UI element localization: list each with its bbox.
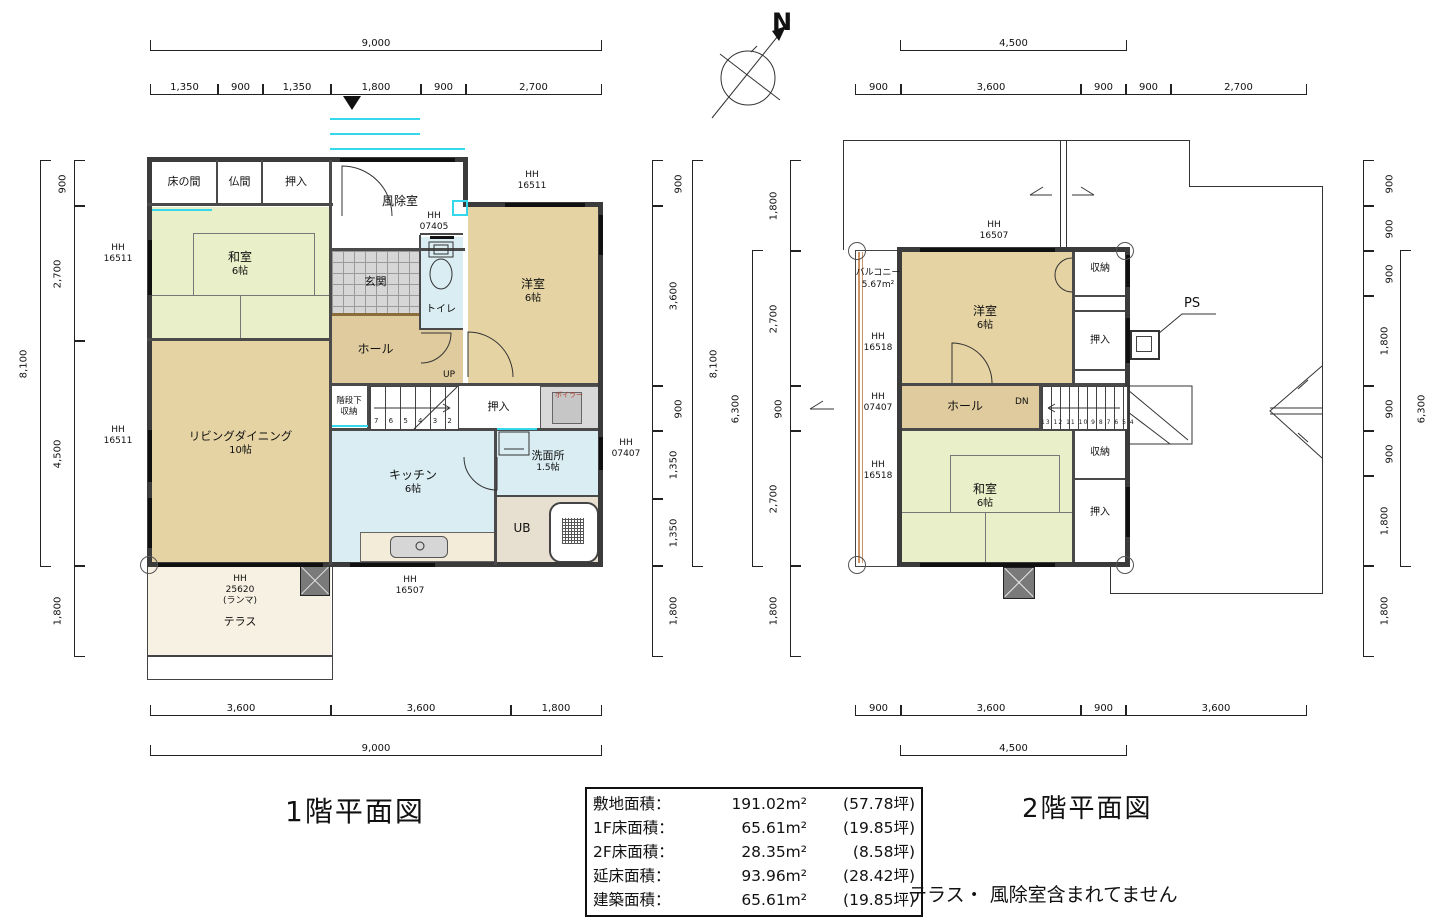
dim-segment: 900: [1363, 160, 1374, 207]
dim-segment: 3,600: [150, 705, 332, 716]
dim-total-top-1f: 9,000: [150, 40, 602, 51]
room-label: 収納: [340, 407, 357, 418]
area-value: 191.02m²: [695, 792, 807, 816]
hh-number: 07407: [612, 449, 641, 459]
area-tsubo: (8.58坪): [807, 840, 915, 864]
dim-segment: 900: [1363, 430, 1374, 477]
hh-label: HH 16511: [98, 425, 138, 447]
dim-label: 3,600: [901, 703, 1081, 714]
window: [350, 563, 435, 567]
floorplan-canvas: 7 6 5 4 3 2 床の間 仏間 押入 風除室 玄関 トイレ 和室 6帖 ホ…: [0, 0, 1442, 923]
room-label: 収納: [1090, 446, 1110, 459]
partition: [216, 160, 218, 205]
agarikamachi: [332, 313, 419, 316]
entrance-step-line: [330, 133, 420, 135]
roof-line: [843, 140, 1189, 141]
roof-chevron: [810, 401, 834, 409]
dim-label: 1,800: [511, 703, 601, 714]
ps-box-inner: [1136, 336, 1152, 352]
area-value: 28.35m²: [695, 840, 807, 864]
area-label: 1F床面積：: [593, 816, 695, 840]
roof-line: [1189, 140, 1190, 187]
room-fujoshitsu: 風除室: [355, 192, 445, 212]
dim-total-bottom-1f: 9,000: [150, 745, 602, 756]
roof-line: [1322, 186, 1323, 593]
room-label: 仏間: [229, 175, 251, 189]
chimney-1f: [300, 566, 330, 596]
dim-label: 900: [856, 82, 901, 93]
window: [1126, 487, 1130, 537]
dim-segment: 3,600: [652, 205, 663, 387]
dim-label: 4,500: [901, 743, 1126, 754]
ps-label: PS: [1184, 296, 1200, 311]
tatami-line: [985, 512, 986, 562]
stair-landing-2f: [1128, 386, 1192, 444]
dim-segment: 3,600: [330, 705, 512, 716]
dim-segment: 900: [652, 160, 663, 207]
window: [599, 437, 603, 470]
floor1-title: 1階平面図: [285, 790, 425, 830]
dim-label: 1,800: [670, 597, 680, 626]
partition: [329, 160, 332, 565]
dim-label: 900: [1385, 174, 1395, 193]
hh-number: 16511: [104, 436, 133, 446]
tatami-line: [193, 233, 315, 234]
room-oshiire-top-1f: 押入: [263, 160, 329, 205]
partition: [261, 160, 263, 205]
hh-number: 16518: [864, 471, 893, 481]
hh-prefix: HH: [233, 574, 247, 584]
room-label: 収納: [1090, 262, 1110, 275]
hh-number: 25620: [226, 585, 255, 595]
hh-label: HH 16511: [512, 170, 552, 192]
dim-segment: 2,700: [74, 205, 85, 342]
dim-segment: 900: [652, 385, 663, 432]
dim-label: 900: [1081, 703, 1126, 714]
window: [148, 498, 152, 548]
hh-prefix: HH: [111, 243, 125, 253]
room-label: 階段下: [336, 396, 362, 407]
dim-segment: 1,350: [652, 430, 663, 500]
partition: [147, 203, 333, 206]
partition: [1075, 478, 1125, 480]
dim-label: 1,350: [263, 82, 331, 93]
dim-segment: 1,800: [510, 705, 602, 716]
dim-segment: 900: [420, 84, 467, 95]
hh-prefix: HH: [871, 392, 885, 402]
dim-label: 2,700: [466, 82, 601, 93]
dim-total-right-2f: 6,300: [1400, 250, 1411, 567]
roof-flue-line: [1066, 140, 1067, 252]
partition: [147, 338, 329, 341]
area-tsubo: (57.78坪): [807, 792, 915, 816]
hh-number: 07405: [420, 222, 449, 232]
compass-circle: [721, 51, 775, 105]
room-oshiire-bottom-2f: 押入: [1076, 502, 1124, 522]
dim-label: 9,000: [151, 38, 601, 49]
entrance-door-band: [340, 158, 455, 162]
hh-prefix: HH: [111, 425, 125, 435]
window: [920, 248, 1055, 252]
dim-segment: 1,800: [1363, 295, 1374, 387]
dim-label: 900: [58, 174, 68, 193]
up-label: UP: [443, 370, 455, 380]
window: [148, 430, 152, 482]
dim-segment: 2,700: [465, 84, 602, 95]
dim-segment: 900: [1363, 385, 1374, 432]
partition: [419, 328, 463, 330]
room-kaidan-shuno: 階段下 収納: [328, 388, 370, 426]
dim-label: 900: [674, 174, 684, 193]
roof-chevron: [1072, 187, 1094, 195]
hh-sub: (ランマ): [223, 596, 257, 606]
room-butsuma: 仏間: [218, 160, 261, 205]
room-fill-yoshitsu-2f: [902, 252, 1073, 383]
hh-label: HH 16507: [972, 220, 1016, 242]
roof-line: [1189, 186, 1322, 187]
dim-label: 8,100: [710, 349, 720, 378]
dim-segment: 1,800: [652, 565, 663, 657]
dim-segment: 3,600: [900, 84, 1082, 95]
tatami-line: [1059, 455, 1060, 512]
column-circle: [140, 556, 158, 574]
room-fill-hall-2f: [902, 386, 1040, 428]
dim-label: 3,600: [331, 703, 511, 714]
hh-number: 16511: [104, 254, 133, 264]
dim-segment: 1,800: [74, 565, 85, 657]
door-arc: [342, 166, 392, 216]
roof-line: [1110, 593, 1323, 594]
hh-prefix: HH: [871, 332, 885, 342]
dim-label: 6,300: [732, 394, 742, 423]
dim-label: 8,100: [20, 349, 30, 378]
room-label: 床の間: [168, 175, 201, 189]
room-fill-hall-1f-b: [419, 330, 463, 383]
room-oshiire-mid-1f: 押入: [459, 386, 538, 428]
floor2-title: 2階平面図: [1022, 788, 1153, 825]
window-accent: [332, 425, 368, 427]
roof-chevron: [1030, 187, 1052, 195]
window: [148, 240, 152, 295]
dim-label: 900: [1385, 399, 1395, 418]
hh-number: 16507: [980, 231, 1009, 241]
hh-prefix: HH: [871, 460, 885, 470]
area-value: 65.61m²: [695, 888, 807, 912]
bathtub-hatch: [562, 518, 584, 544]
dim-segment: 900: [217, 84, 264, 95]
column-circle: [1116, 556, 1134, 574]
hh-label: HH 07407: [604, 438, 648, 460]
column-circle: [1116, 242, 1134, 260]
area-label: 2F床面積：: [593, 840, 695, 864]
dim-label: 1,800: [54, 597, 64, 626]
dim-segment: 1,350: [652, 498, 663, 567]
dim-label: 900: [1081, 82, 1126, 93]
boiler-inner: [552, 392, 582, 424]
hh-prefix: HH: [403, 575, 417, 585]
area-tsubo: (28.42坪): [807, 864, 915, 888]
dim-segment: 900: [74, 160, 85, 207]
area-label: 延床面積：: [593, 864, 695, 888]
dim-segment: 1,800: [330, 84, 422, 95]
dim-segment: 2,700: [790, 250, 801, 387]
room-fill-yoshitsu-1f: [468, 207, 598, 383]
roof-flue-line: [1060, 140, 1061, 252]
hh-label: HH 07407: [856, 392, 900, 414]
room-fill-living: [152, 341, 329, 562]
area-row: 敷地面積： 191.02m² (57.78坪): [593, 792, 915, 816]
hh-label: HH 16507: [388, 575, 432, 597]
dim-segment: 1,350: [262, 84, 332, 95]
dim-segment: 900: [855, 705, 902, 716]
area-table: 敷地面積： 191.02m² (57.78坪) 1F床面積： 65.61m² (…: [585, 787, 923, 917]
dim-total-bottom-2f: 4,500: [900, 745, 1127, 756]
dim-total-left-1f: 8,100: [40, 160, 51, 567]
entrance-step-line: [330, 148, 465, 150]
hh-label: HH 16518: [856, 460, 900, 482]
dim-segment: 1,800: [1363, 475, 1374, 567]
hh-prefix: HH: [987, 220, 1001, 230]
dim-total-top-2f: 4,500: [900, 40, 1127, 51]
dim-label: 900: [1126, 82, 1171, 93]
room-label: 押入: [488, 400, 510, 414]
dim-label: 1,350: [670, 518, 680, 547]
hh-prefix: HH: [525, 170, 539, 180]
terrace-step: [147, 655, 333, 680]
hh-number: 16518: [864, 343, 893, 353]
dim-label: 1,800: [331, 82, 421, 93]
dim-label: 6,300: [1418, 394, 1428, 423]
hh-prefix: HH: [427, 211, 441, 221]
dim-segment: 900: [855, 84, 902, 95]
dn-label: DN: [1015, 397, 1029, 407]
roof-line: [843, 140, 844, 250]
room-shuno-top-2f: 収納: [1076, 258, 1124, 278]
tatami-line: [902, 512, 1073, 513]
dim-segment: 900: [1125, 84, 1172, 95]
tatami-line: [950, 455, 951, 512]
dim-segment: 900: [1080, 705, 1127, 716]
dim-label: 4,500: [901, 38, 1126, 49]
window: [158, 563, 323, 567]
partition: [494, 495, 598, 497]
dim-total-left-2f: 6,300: [752, 250, 763, 567]
partition: [419, 235, 421, 330]
gable-arrow: [1270, 366, 1322, 458]
partition: [1075, 369, 1125, 371]
dim-segment: 1,800: [1363, 565, 1374, 657]
dim-label: 900: [218, 82, 263, 93]
room-fill-genkan: [332, 251, 419, 313]
dim-label: 1,350: [151, 82, 218, 93]
tatami-line: [314, 233, 315, 295]
dim-label: 3,600: [901, 82, 1081, 93]
dim-segment: 2,700: [790, 430, 801, 567]
window-accent: [497, 428, 537, 430]
area-row: 1F床面積： 65.61m² (19.85坪): [593, 816, 915, 840]
dim-segment: 900: [1363, 205, 1374, 252]
window: [430, 236, 454, 239]
tatami-line: [240, 295, 241, 338]
dim-segment: 900: [1080, 84, 1127, 95]
window-accent: [152, 209, 212, 211]
tatami-line: [950, 455, 1060, 456]
room-oshiire-top-2f: 押入: [1076, 330, 1124, 350]
room-label: 押入: [1090, 506, 1110, 519]
partition: [1075, 295, 1125, 297]
room-label: 風除室: [382, 194, 418, 210]
dim-label: 2,700: [1171, 82, 1306, 93]
dim-label: 3,600: [1126, 703, 1306, 714]
tatami-line: [193, 233, 194, 295]
dim-segment: 2,700: [1170, 84, 1307, 95]
dim-label: 2,700: [770, 304, 780, 333]
area-label: 敷地面積：: [593, 792, 695, 816]
room-fill-hall-1f: [332, 316, 419, 383]
dim-segment: 1,800: [790, 565, 801, 657]
area-tsubo: (19.85坪): [807, 888, 915, 912]
partition: [1075, 310, 1125, 312]
dim-label: 1,800: [770, 597, 780, 626]
ps-leader: [1158, 314, 1216, 334]
dim-label: 3,600: [670, 282, 680, 311]
hh-label-ranma: HH 25620 (ランマ): [212, 574, 268, 606]
stair-numbers-1f: 7 6 5 4 3 2: [374, 417, 456, 425]
entrance-marker: [343, 96, 361, 110]
area-value: 93.96m²: [695, 864, 807, 888]
partition: [332, 248, 465, 251]
dim-label: 900: [1385, 219, 1395, 238]
dim-segment: 900: [790, 385, 801, 432]
dim-label: 1,800: [770, 192, 780, 221]
column-circle: [848, 556, 866, 574]
dim-label: 900: [421, 82, 466, 93]
window: [505, 203, 585, 207]
hh-number: 16511: [518, 181, 547, 191]
room-shuno-bottom-2f: 収納: [1076, 442, 1124, 462]
hh-label: HH 16511: [98, 243, 138, 265]
dim-segment: 1,800: [790, 160, 801, 252]
chimney-2f: [1003, 567, 1035, 599]
wall: [598, 202, 603, 567]
dim-total-right-1f: 8,100: [692, 160, 703, 567]
room-label: 押入: [285, 175, 307, 189]
dim-label: 900: [856, 703, 901, 714]
dim-label: 900: [1385, 444, 1395, 463]
partition: [420, 233, 463, 235]
dim-segment: 3,600: [900, 705, 1082, 716]
room-fill-washitsu-2f: [902, 431, 1073, 562]
area-value: 65.61m²: [695, 816, 807, 840]
dim-label: 3,600: [151, 703, 331, 714]
column-circle: [848, 242, 866, 260]
dim-label: 1,800: [1381, 597, 1391, 626]
room-fill-senmenjo: [497, 430, 598, 495]
dim-label: 1,350: [670, 451, 680, 480]
dim-segment: 4,500: [74, 340, 85, 567]
area-row: 2F床面積： 28.35m² (8.58坪): [593, 840, 915, 864]
hh-number: 16507: [396, 586, 425, 596]
room-tokonoma: 床の間: [152, 160, 216, 205]
dim-label: 4,500: [54, 439, 64, 468]
dim-label: 900: [1385, 264, 1395, 283]
stair-numbers-2f: 13 12 11 10 9 8 7 6 5 4: [1041, 419, 1135, 426]
area-row: 建築面積： 65.61m² (19.85坪): [593, 888, 915, 912]
dim-label: 900: [674, 399, 684, 418]
area-row: 延床面積： 93.96m² (28.42坪): [593, 864, 915, 888]
hh-number: 07407: [864, 403, 893, 413]
area-label: 建築面積：: [593, 888, 695, 912]
kitchen-sink: [390, 536, 448, 558]
dim-label: 900: [774, 399, 784, 418]
dim-segment: 3,600: [1125, 705, 1307, 716]
hh-prefix: HH: [619, 438, 633, 448]
dim-label: 9,000: [151, 743, 601, 754]
room-label: 押入: [1090, 334, 1110, 347]
hh-label: HH 16518: [856, 332, 900, 354]
dim-segment: 900: [1363, 250, 1374, 297]
north-label: N: [772, 8, 792, 36]
dim-label: 2,700: [54, 259, 64, 288]
dim-label: 1,800: [1381, 327, 1391, 356]
dim-label: 2,700: [770, 484, 780, 513]
exclusion-note: テラス・ 風除室含まれてません: [908, 880, 1178, 907]
dim-segment: 1,350: [150, 84, 219, 95]
dim-label: 1,800: [1381, 507, 1391, 536]
entrance-step-line: [330, 118, 420, 120]
hh-label: HH 07405: [412, 211, 456, 233]
area-tsubo: (19.85坪): [807, 816, 915, 840]
window: [599, 215, 603, 255]
roof-line: [1110, 567, 1111, 594]
